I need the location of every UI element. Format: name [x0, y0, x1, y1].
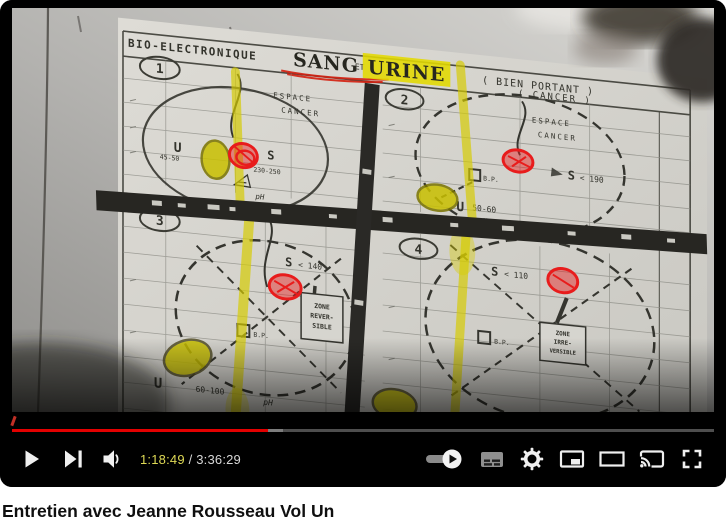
play-icon [14, 441, 50, 477]
duration: 3:36:29 [196, 452, 241, 467]
settings-button[interactable] [512, 441, 552, 477]
bottom-gradient [12, 338, 714, 412]
miniplayer-button[interactable] [552, 441, 592, 477]
autoplay-icon [418, 441, 472, 477]
video-title: Entretien avec Jeanne Rousseau Vol Un [2, 500, 726, 523]
gear-icon [514, 441, 550, 477]
quadrant-3-number: 3 [156, 214, 164, 230]
time-display: 1:18:49 / 3:36:29 [140, 452, 241, 467]
volume-button[interactable] [92, 441, 132, 477]
next-button[interactable] [52, 441, 92, 477]
volume-icon [94, 441, 130, 477]
q1-red-blob [229, 142, 257, 169]
q3-s-label: S [285, 255, 292, 270]
fullscreen-icon [674, 441, 710, 477]
cast-button[interactable] [632, 441, 672, 477]
q1-ph: pH [255, 192, 264, 202]
play-button[interactable] [12, 441, 52, 477]
quadrant-1-number: 1 [156, 62, 164, 78]
q2-s-label: S [568, 168, 575, 183]
fullscreen-button[interactable] [672, 441, 712, 477]
subtitles-button[interactable] [472, 441, 512, 477]
youtube-player: BIO-ELECTRONIQUE SANG ET URINE ( BIEN PO… [0, 0, 726, 487]
next-icon [54, 441, 90, 477]
theater-icon [594, 441, 630, 477]
q3-zone1: ZONE [314, 302, 330, 312]
autoplay-toggle[interactable] [418, 441, 472, 477]
quadrant-4-number: 4 [415, 242, 423, 258]
video-scene: BIO-ELECTRONIQUE SANG ET URINE ( BIEN PO… [0, 0, 726, 420]
theater-button[interactable] [592, 441, 632, 477]
q1-s-label: S [267, 148, 274, 163]
q2-bp: B.P. [483, 174, 499, 184]
time-separator: / [185, 452, 196, 467]
player-controls: 1:18:49 / 3:36:29 [0, 420, 726, 487]
video-frame[interactable]: BIO-ELECTRONIQUE SANG ET URINE ( BIEN PO… [0, 0, 726, 420]
controls-right [418, 441, 712, 477]
quadrant-2-number: 2 [401, 93, 409, 109]
progress-played [12, 429, 268, 432]
cast-icon [634, 441, 670, 477]
subtitles-icon [474, 441, 510, 477]
controls-left: 1:18:49 / 3:36:29 [12, 441, 241, 477]
progress-bar[interactable] [12, 429, 714, 432]
page: BIO-ELECTRONIQUE SANG ET URINE ( BIEN PO… [0, 0, 726, 523]
miniplayer-icon [554, 441, 590, 477]
q4-s-label: S [491, 264, 498, 279]
current-time: 1:18:49 [140, 452, 185, 467]
